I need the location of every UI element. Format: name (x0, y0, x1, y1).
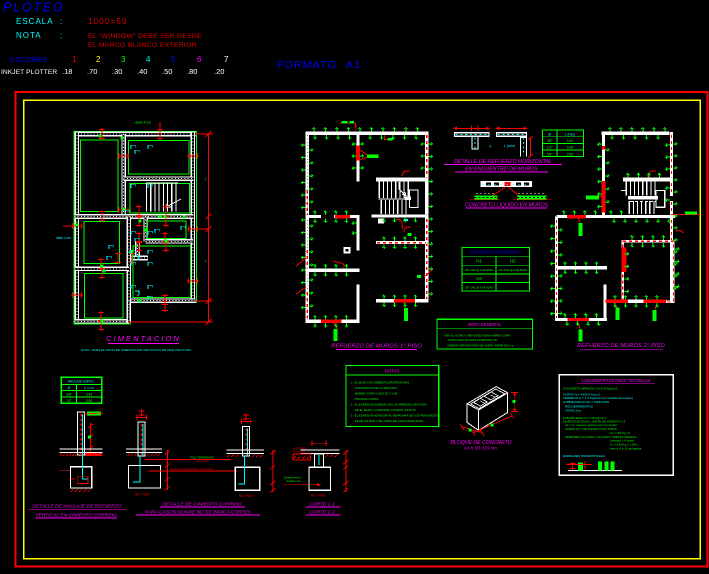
svg-text:1/4" 1HIL @ 4 HILADAS: 1/4" 1HIL @ 4 HILADAS (499, 268, 527, 272)
svg-text:CONSIDERACIONES TECNICAS: CONSIDERACIONES TECNICAS (581, 378, 651, 383)
svg-text:PISOS EN JUNTA: PISOS EN JUNTA (355, 397, 379, 401)
svg-text:|: | (205, 258, 206, 263)
svg-text:0.45: 0.45 (567, 146, 574, 150)
svg-text:1/2": 1/2" (547, 146, 554, 150)
svg-text:ANCLAJE ESPEC.: ANCLAJE ESPEC. (68, 379, 95, 383)
svg-text:.18: .18 (62, 67, 72, 76)
svg-text:CONCRETO ARMADO f'c=175 Kg/: CONCRETO ARMADO f'c=175 Kg/cm2. (563, 386, 618, 390)
svg-text:EL "WINDOW" DEBE SER DESDE: EL "WINDOW" DEBE SER DESDE (88, 33, 202, 40)
svg-text::: : (60, 17, 62, 26)
svg-text:NIV. PISO: NIV. PISO (135, 493, 150, 497)
svg-text:.40: .40 (137, 67, 147, 76)
svg-text:EL MARCO BLANCO EXTERIOR: EL MARCO BLANCO EXTERIOR (88, 42, 197, 49)
svg-text:2: 2 (96, 55, 101, 64)
svg-text:CONCRETO LIQUIDO EN MUROS: CONCRETO LIQUIDO EN MUROS (465, 202, 549, 208)
svg-text:H2: H2 (510, 259, 516, 264)
svg-text:INKJET PLOTTER: INKJET PLOTTER (1, 69, 57, 76)
svg-text:0.40: 0.40 (567, 139, 574, 143)
svg-text:REFUERZO DE MUROS 2° PISO: REFUERZO DE MUROS 2° PISO (577, 343, 665, 349)
svg-text:DETALLE DE REFUERZO HORIZONTAL: DETALLE DE REFUERZO HORIZONTAL (454, 159, 552, 165)
svg-text:1000=50: 1000=50 (88, 17, 128, 26)
svg-text:- REF. EL ACERO Y REFUERZO SE: - REF. EL ACERO Y REFUERZO SERA FIERRO C… (443, 333, 511, 337)
svg-text:p: p (490, 144, 492, 148)
svg-text:H3: H3 (476, 276, 482, 281)
svg-text:L (min): L (min) (565, 132, 575, 136)
svg-text:5/8": 5/8" (547, 152, 554, 156)
svg-text:VERTICAL EN CIMIENTO CORRIDO: VERTICAL EN CIMIENTO CORRIDO (35, 512, 117, 518)
svg-text:.70: .70 (87, 67, 97, 76)
svg-text:PARA CASOS DONDE NO SE INDICA: PARA CASOS DONDE NO SE INDICA CORTES (145, 509, 252, 515)
svg-text:Ø: Ø (548, 131, 551, 136)
svg-text:CORTE 2-2: CORTE 2-2 (309, 509, 335, 515)
svg-text:Lr (mm): Lr (mm) (84, 386, 95, 390)
svg-text:L (min): L (min) (504, 144, 515, 148)
svg-text:14 X 39 X19 cm.: 14 X 39 X19 cm. (464, 446, 498, 451)
svg-text:3: 3 (121, 55, 126, 64)
svg-text:EMPALMES HORIZONTALES: EMPALMES HORIZONTALES (563, 454, 605, 458)
svg-text:PLOTEO: PLOTEO (3, 1, 65, 15)
svg-text:3/8": 3/8" (66, 392, 72, 396)
svg-text:JUNTA CADA HILADAS HORMIGON; N: JUNTA CADA HILADAS HORMIGON; NO (448, 338, 498, 342)
svg-text:DETALLE DE CIMIENTO CORRIDO: DETALLE DE CIMIENTO CORRIDO (162, 501, 241, 507)
svg-text:H1: H1 (476, 259, 482, 264)
svg-text:NOTA:- PARA EL INICIO DE CIMEN: NOTA:- PARA EL INICIO DE CIMENTACION VER… (81, 348, 192, 352)
svg-text:dado 4 cm: dado 4 cm (135, 121, 151, 125)
svg-text:.50: .50 (162, 67, 172, 76)
svg-text:4: 4 (146, 55, 151, 64)
svg-text:3/8" 1HIL @ 2 HILADAS: 3/8" 1HIL @ 2 HILADAS (465, 268, 493, 272)
svg-text:mezcla 1:12: mezcla 1:12 (286, 479, 301, 483)
svg-text:Solado e=4cm: Solado e=4cm (284, 475, 302, 479)
svg-text:1: 1 (72, 55, 77, 64)
svg-text:asent. 8 a 10 pulgadas: asent. 8 a 10 pulgadas (610, 446, 642, 450)
svg-text:ESCALA: ESCALA (16, 17, 54, 26)
svg-text::: : (60, 31, 62, 40)
svg-text:3/8" 1HIL @ 3 HILADAS: 3/8" 1HIL @ 3 HILADAS (465, 286, 493, 290)
svg-text:7: 7 (224, 55, 229, 64)
svg-text:A1: A1 (346, 59, 361, 71)
svg-text:3.- EL ESPESOR HORIZONTAL REPA: 3.- EL ESPESOR HORIZONTAL REPASARA DE LO… (351, 413, 440, 417)
svg-text:6: 6 (197, 55, 202, 64)
svg-text:.80: .80 (187, 67, 197, 76)
svg-text:NOTA GENERAL: NOTA GENERAL (468, 322, 502, 327)
svg-text:REFUERZO DE MUROS 1° PISO: REFUERZO DE MUROS 1° PISO (331, 344, 422, 350)
svg-text:NOTAS: NOTAS (385, 368, 400, 373)
svg-text:NIV. PISO: NIV. PISO (239, 494, 254, 498)
svg-text:nivel +0.00: nivel +0.00 (196, 459, 209, 463)
svg-text:PISO TERMINADO: PISO TERMINADO (190, 455, 215, 459)
svg-text:DETALLE DE ANCLAJE DE REFUERZO: DETALLE DE ANCLAJE DE REFUERZO (32, 504, 121, 510)
svg-text:1.- EL MURO NO DEBERA SOPORTAR: 1.- EL MURO NO DEBERA SOPORTAR MAS (351, 380, 410, 384)
svg-text:VIGAS 2cm: VIGAS 2cm (565, 409, 582, 413)
svg-text:dado 4 cm: dado 4 cm (56, 236, 71, 240)
svg-text:3/8": 3/8" (547, 139, 554, 143)
svg-text:FORMATO: FORMATO (277, 59, 337, 71)
svg-text:5: 5 (171, 55, 176, 64)
svg-text:0.50: 0.50 (567, 152, 574, 156)
svg-text:2.- EL ESPESOR NOMINAL DE LAS: 2.- EL ESPESOR NOMINAL DE LAS PAREDES AP… (351, 402, 427, 406)
svg-text:NIV. PISO: NIV. PISO (311, 494, 326, 498)
svg-text:CIMENTACION: CIMENTACION (106, 334, 181, 343)
svg-text:1:3 e=2cm: 1:3 e=2cm (293, 450, 305, 454)
svg-text:DEBERA SER RESISTEN DE ACERO,: DEBERA SER RESISTEN DE ACERO, FIERR DE 2… (448, 344, 515, 348)
svg-text:MINIMO JUNTA CADA 25 X 1 ML: MINIMO JUNTA CADA 25 X 1 ML (355, 392, 399, 396)
svg-text:SE DE AJUSTE Y SE JUNTA DE CAD: SE DE AJUSTE Y SE JUNTA DE CADA MURO PIS… (355, 419, 424, 423)
svg-text:|: | (205, 176, 206, 181)
svg-text:0.58: 0.58 (86, 399, 92, 403)
svg-text:NOTA: NOTA (16, 31, 42, 40)
svg-text:.20: .20 (214, 67, 224, 76)
svg-text:.30: .30 (112, 67, 122, 76)
svg-text:REFUERZO HORIZONTAL: REFUERZO HORIZONTAL (470, 250, 522, 255)
svg-text:DE EL MURO, COMPONE 2 MUROS JU: DE EL MURO, COMPONE 2 MUROS JUNTOS (355, 408, 416, 412)
svg-text:0.44: 0.44 (86, 392, 92, 396)
svg-text:1/2": 1/2" (66, 399, 72, 403)
svg-text:Ø: Ø (68, 386, 71, 390)
svg-text:DISPOSICION DE LA SECCION: DISPOSICION DE LA SECCION (355, 386, 397, 390)
svg-text:FALSO PISO MORTERO 1:8 (e=4cm): FALSO PISO MORTERO 1:8 (e=4cm) (170, 467, 214, 471)
svg-text:CORTE 1-1: CORTE 1-1 (309, 501, 335, 507)
svg-text:COLORES: COLORES (10, 57, 47, 64)
